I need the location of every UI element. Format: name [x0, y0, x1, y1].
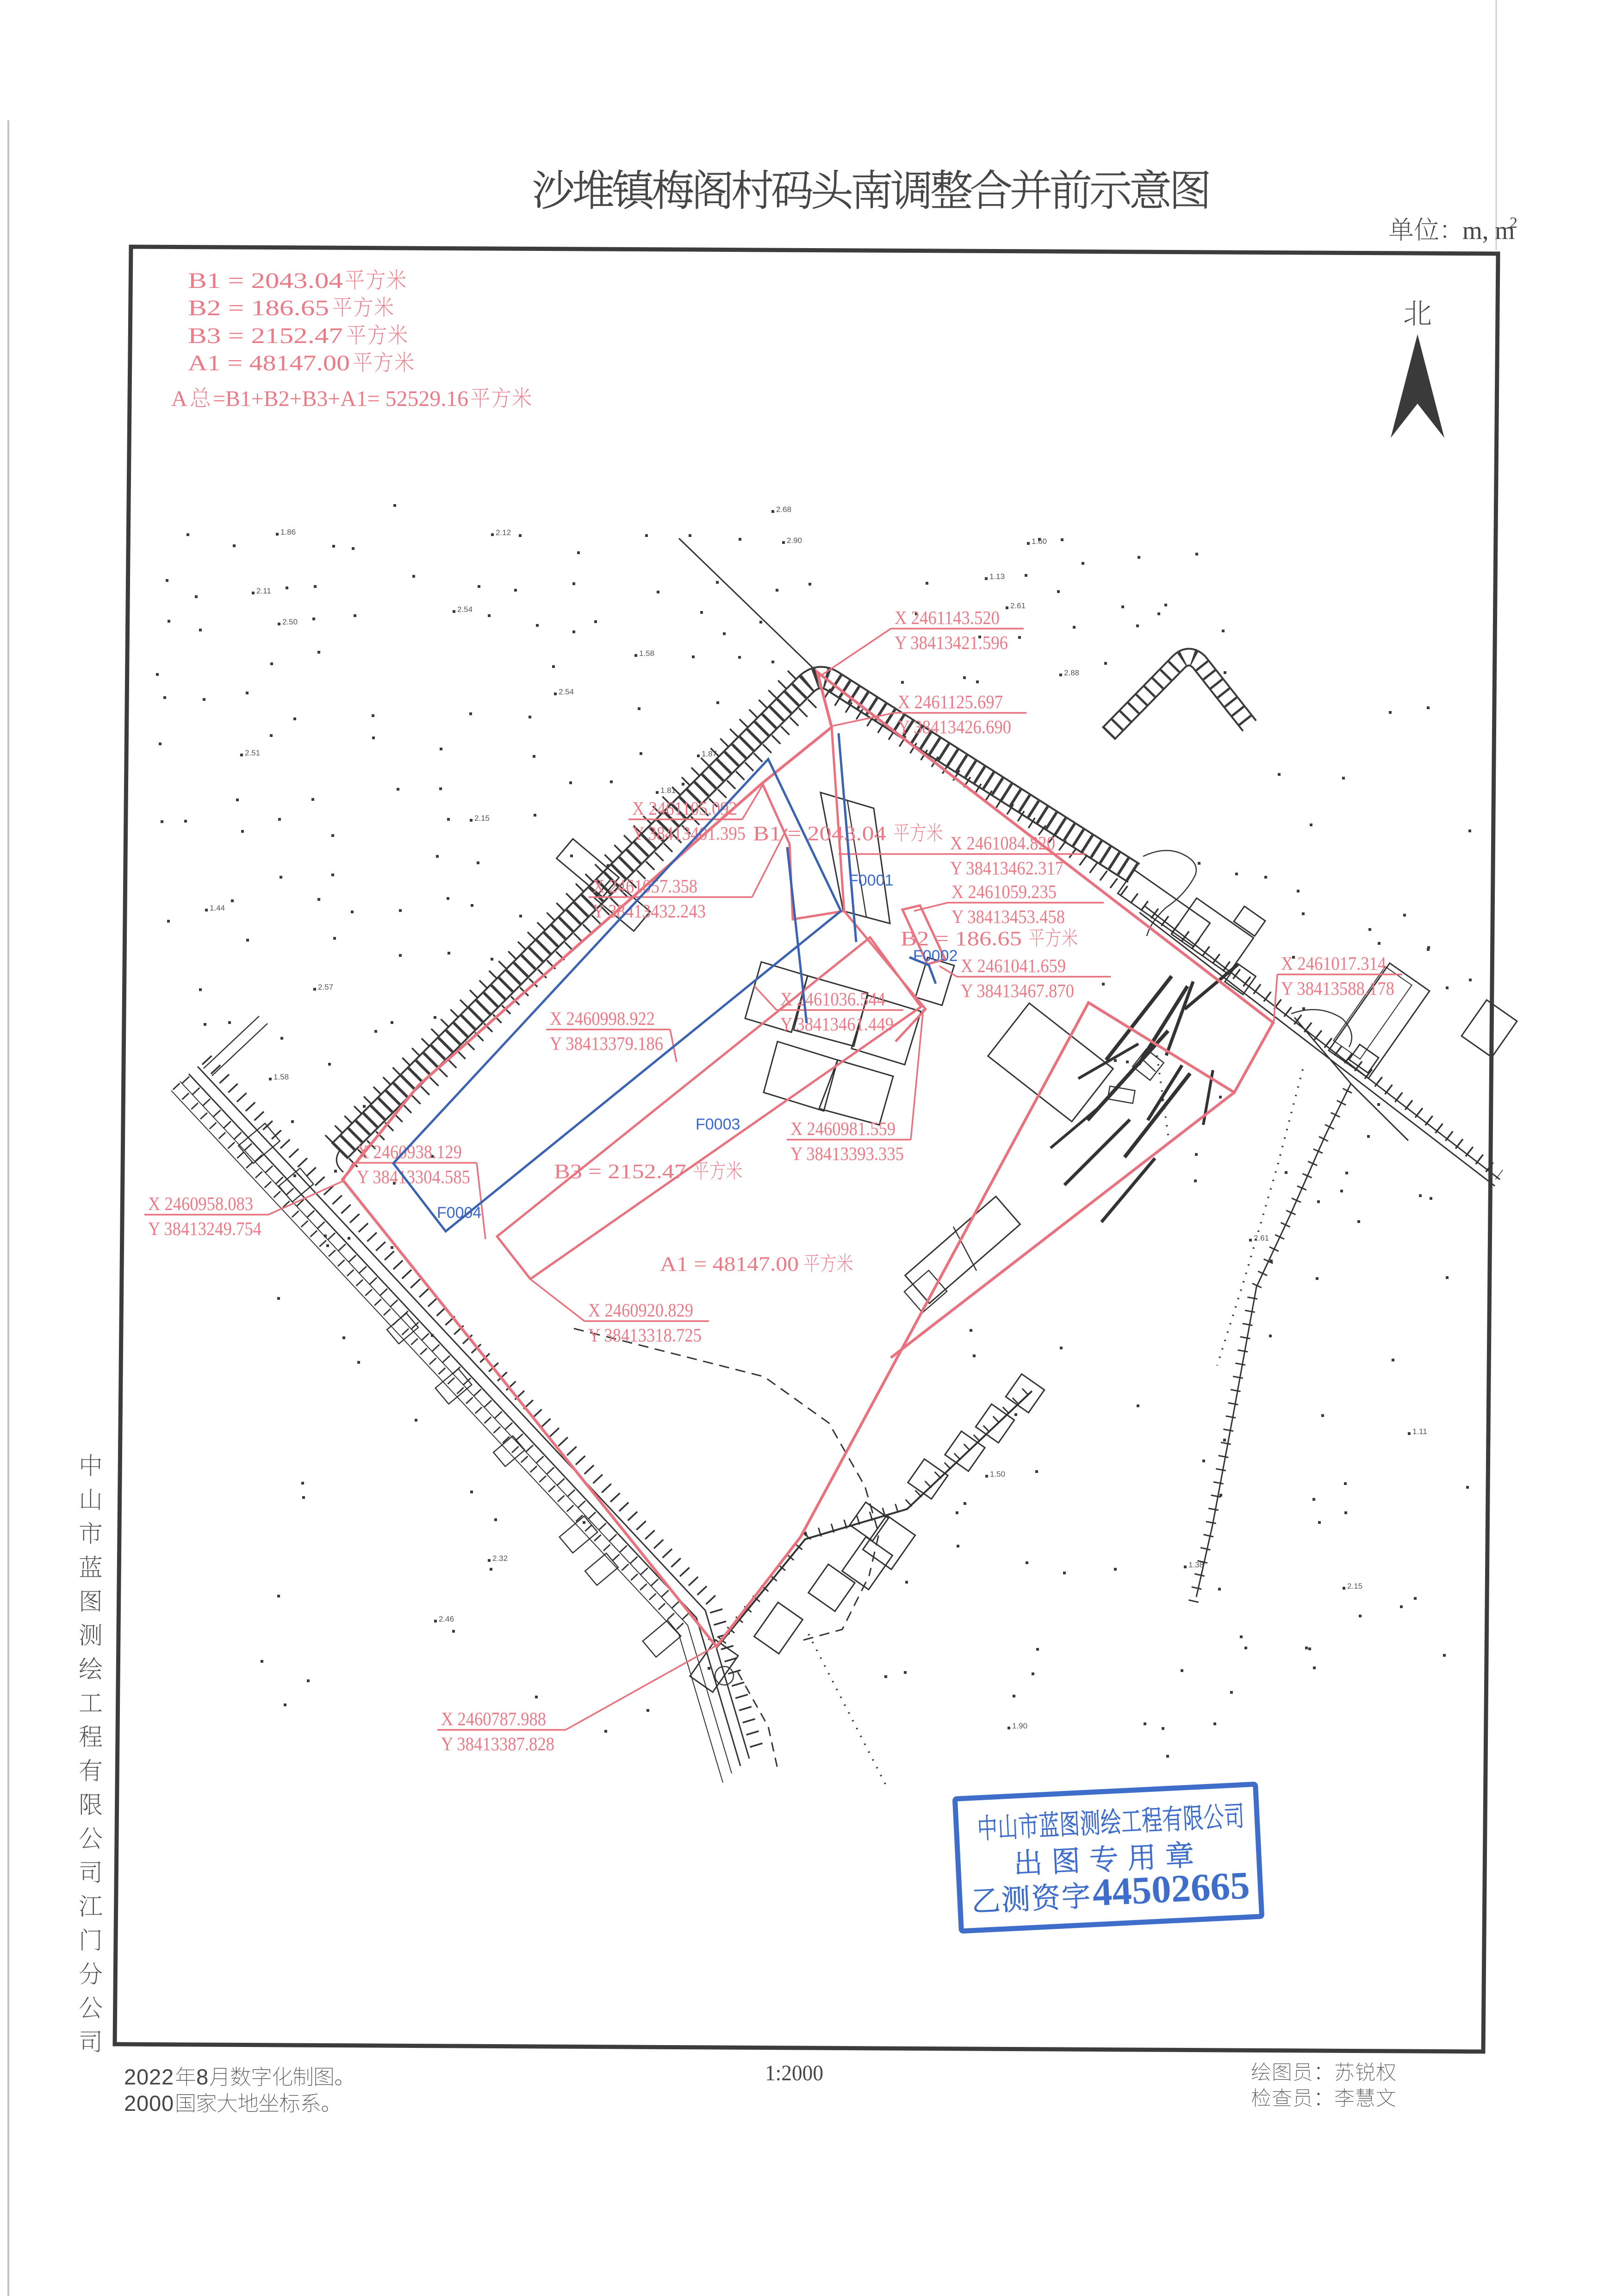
svg-text:2.61: 2.61	[1010, 601, 1026, 610]
svg-text:X 2460958.083: X 2460958.083	[148, 1193, 253, 1214]
svg-text:Y 38413387.828: Y 38413387.828	[441, 1733, 554, 1754]
svg-text:1.44: 1.44	[210, 904, 225, 912]
svg-text:A1 = 48147.00: A1 = 48147.00	[660, 1253, 799, 1275]
svg-text:1.11: 1.11	[1412, 1427, 1427, 1436]
svg-text:X 2461017.314: X 2461017.314	[1281, 953, 1386, 974]
svg-text:X 2460920.829: X 2460920.829	[588, 1299, 693, 1321]
svg-text:1:2000: 1:2000	[765, 2061, 823, 2085]
svg-text:2.54: 2.54	[559, 687, 574, 696]
svg-text:0: 0	[137, 2065, 149, 2089]
svg-text:B1 = 2043.04: B1 = 2043.04	[753, 822, 886, 845]
svg-text:Y 38413432.243: Y 38413432.243	[592, 900, 706, 922]
svg-text:2.46: 2.46	[439, 1615, 454, 1623]
svg-text:Y 38413393.335: Y 38413393.335	[790, 1143, 904, 1164]
svg-text:2: 2	[149, 2065, 161, 2089]
svg-text:1.87: 1.87	[702, 749, 717, 758]
svg-text:m, m: m, m	[1462, 216, 1515, 244]
svg-text:X 2460938.129: X 2460938.129	[357, 1141, 462, 1162]
svg-text:Y 38413379.186: Y 38413379.186	[550, 1033, 663, 1054]
svg-text:Y 38413401.395: Y 38413401.395	[632, 823, 746, 844]
svg-text:B2 = 186.65: B2 = 186.65	[901, 927, 1022, 950]
svg-text:X 2461143.520: X 2461143.520	[895, 607, 1000, 628]
svg-text:X 2460998.922: X 2460998.922	[550, 1008, 655, 1029]
svg-text:=B1+B2+B3+A1= 52529.16: =B1+B2+B3+A1= 52529.16	[213, 387, 468, 411]
svg-text:Y 38413304.585: Y 38413304.585	[357, 1166, 470, 1187]
svg-text:X 2460981.559: X 2460981.559	[790, 1118, 895, 1139]
svg-text:1.50: 1.50	[990, 1470, 1005, 1479]
svg-text:1.86: 1.86	[280, 528, 296, 537]
svg-text:2.90: 2.90	[787, 536, 802, 545]
svg-text:F0001: F0001	[849, 872, 893, 889]
svg-text:1.90: 1.90	[1012, 1722, 1027, 1730]
svg-text:1.60: 1.60	[1032, 537, 1047, 546]
svg-text:0: 0	[149, 2091, 161, 2115]
svg-text:X 2461041.659: X 2461041.659	[961, 955, 1066, 976]
svg-text:Y 38413426.690: Y 38413426.690	[898, 716, 1011, 737]
svg-text:2.88: 2.88	[1064, 668, 1079, 677]
svg-text:0: 0	[162, 2091, 174, 2115]
svg-text:2.11: 2.11	[256, 586, 271, 595]
svg-text:2.51: 2.51	[245, 749, 260, 757]
svg-text:Y 38413467.870: Y 38413467.870	[961, 980, 1074, 1001]
svg-text:X 2461084.820: X 2461084.820	[950, 832, 1055, 854]
svg-text:F0003: F0003	[696, 1116, 740, 1133]
svg-text:2.50: 2.50	[282, 618, 298, 626]
svg-text:1.58: 1.58	[274, 1073, 289, 1081]
svg-text:2.57: 2.57	[318, 983, 333, 992]
svg-text:2: 2	[162, 2065, 174, 2089]
svg-text:Y 38413421.596: Y 38413421.596	[895, 632, 1008, 653]
svg-text:A1 = 48147.00: A1 = 48147.00	[188, 351, 350, 375]
svg-text:X 2461125.697: X 2461125.697	[898, 691, 1003, 712]
svg-text:F0002: F0002	[913, 947, 958, 965]
svg-text:B1 = 2043.04: B1 = 2043.04	[188, 268, 343, 293]
svg-text:X 2460787.988: X 2460787.988	[441, 1708, 546, 1729]
svg-text:2: 2	[124, 2065, 136, 2089]
svg-text:Y 38413461.449: Y 38413461.449	[780, 1013, 894, 1035]
svg-text:0: 0	[137, 2091, 149, 2115]
svg-text:Y 38413462.317: Y 38413462.317	[950, 857, 1063, 879]
svg-text:A: A	[171, 387, 187, 411]
svg-text:B2 = 186.65: B2 = 186.65	[188, 296, 329, 320]
svg-text:2.54: 2.54	[457, 605, 473, 614]
svg-text:Y 38413249.754: Y 38413249.754	[148, 1218, 261, 1239]
svg-text:44502665: 44502665	[1091, 1864, 1250, 1914]
svg-text:2.32: 2.32	[492, 1554, 508, 1563]
svg-text:2: 2	[124, 2091, 136, 2115]
svg-text:1.58: 1.58	[639, 649, 654, 658]
svg-text:2: 2	[1510, 214, 1517, 231]
svg-text:1.13: 1.13	[989, 572, 1005, 581]
svg-text:Y 38413453.458: Y 38413453.458	[951, 906, 1065, 927]
svg-text:B3 = 2152.47: B3 = 2152.47	[188, 324, 343, 348]
svg-text:Y 38413318.725: Y 38413318.725	[588, 1324, 702, 1346]
svg-text:X 2461036.544: X 2461036.544	[780, 988, 885, 1010]
svg-text:B3 = 2152.47: B3 = 2152.47	[554, 1160, 686, 1183]
svg-text:2.15: 2.15	[474, 814, 490, 823]
svg-text:Y 38413588.178: Y 38413588.178	[1281, 978, 1394, 999]
svg-text:F0004: F0004	[437, 1204, 481, 1222]
svg-text:X 2461059.235: X 2461059.235	[951, 881, 1057, 902]
svg-text:2.15: 2.15	[1347, 1582, 1362, 1591]
svg-text:2.12: 2.12	[496, 528, 511, 537]
svg-text:8: 8	[196, 2065, 208, 2089]
svg-text:2.68: 2.68	[776, 505, 791, 514]
svg-text:2.61: 2.61	[1254, 1234, 1269, 1242]
